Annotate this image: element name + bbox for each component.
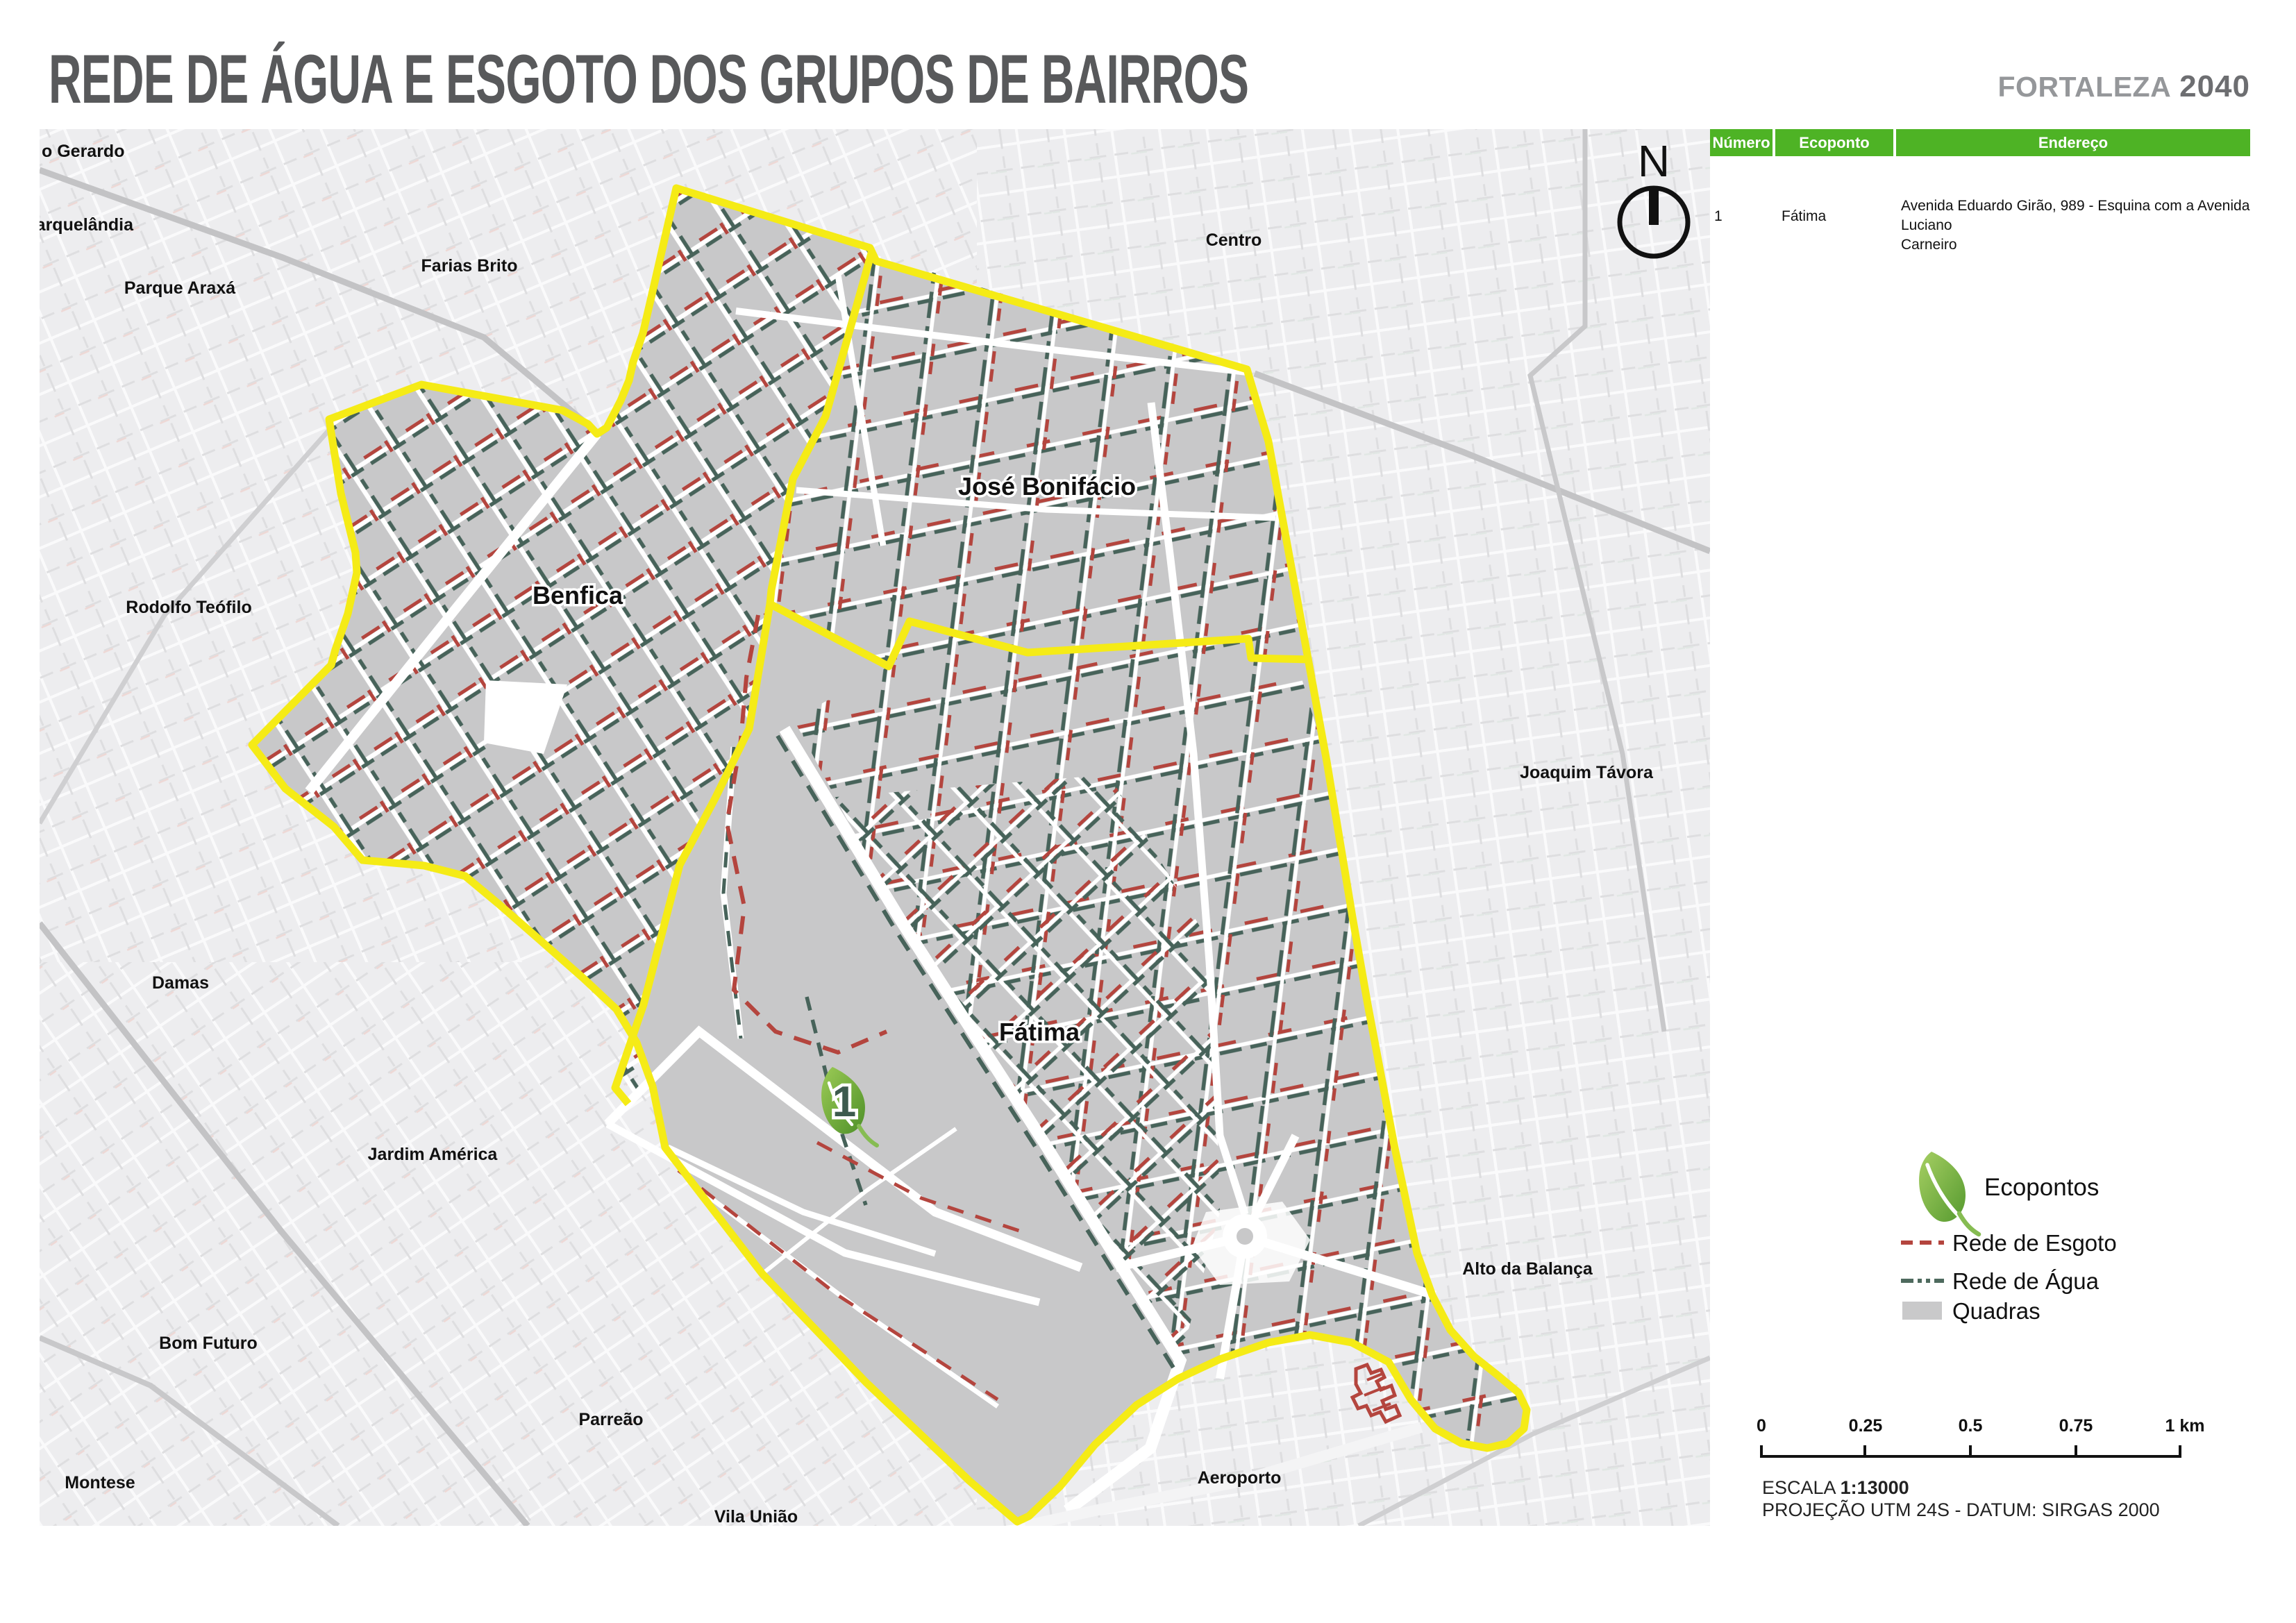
- svg-text:Aeroporto: Aeroporto: [1198, 1468, 1282, 1488]
- svg-text:Parquelândia: Parquelândia: [40, 215, 134, 235]
- svg-text:Joaquim Távora: Joaquim Távora: [1520, 763, 1654, 782]
- svg-text:Montese: Montese: [65, 1473, 135, 1492]
- svg-text:N: N: [1638, 136, 1670, 186]
- svg-text:Farias Brito: Farias Brito: [421, 256, 518, 276]
- svg-text:José Bonifácio: José Bonifácio: [958, 472, 1136, 501]
- svg-text:Centro: Centro: [1206, 230, 1262, 250]
- svg-text:Fátima: Fátima: [999, 1018, 1080, 1046]
- svg-text:Quadras: Quadras: [1952, 1298, 2041, 1324]
- svg-text:o Gerardo: o Gerardo: [42, 142, 124, 161]
- svg-text:Rede de Esgoto: Rede de Esgoto: [1952, 1230, 2117, 1256]
- svg-text:Damas: Damas: [152, 973, 209, 993]
- svg-text:1: 1: [832, 1078, 856, 1126]
- svg-text:Rede de Água: Rede de Água: [1952, 1268, 2100, 1294]
- svg-text:Bom Futuro: Bom Futuro: [159, 1334, 258, 1353]
- svg-text:Jardim América: Jardim América: [368, 1145, 498, 1164]
- svg-text:Parque Araxá: Parque Araxá: [124, 278, 235, 298]
- svg-text:Ecopontos: Ecopontos: [1984, 1174, 2099, 1201]
- svg-text:Vila União: Vila União: [714, 1507, 798, 1526]
- svg-text:Parreão: Parreão: [578, 1410, 643, 1429]
- svg-text:Alto da Balança: Alto da Balança: [1462, 1259, 1593, 1279]
- svg-text:Rodolfo Teófilo: Rodolfo Teófilo: [126, 598, 251, 617]
- svg-text:Benfica: Benfica: [533, 581, 623, 609]
